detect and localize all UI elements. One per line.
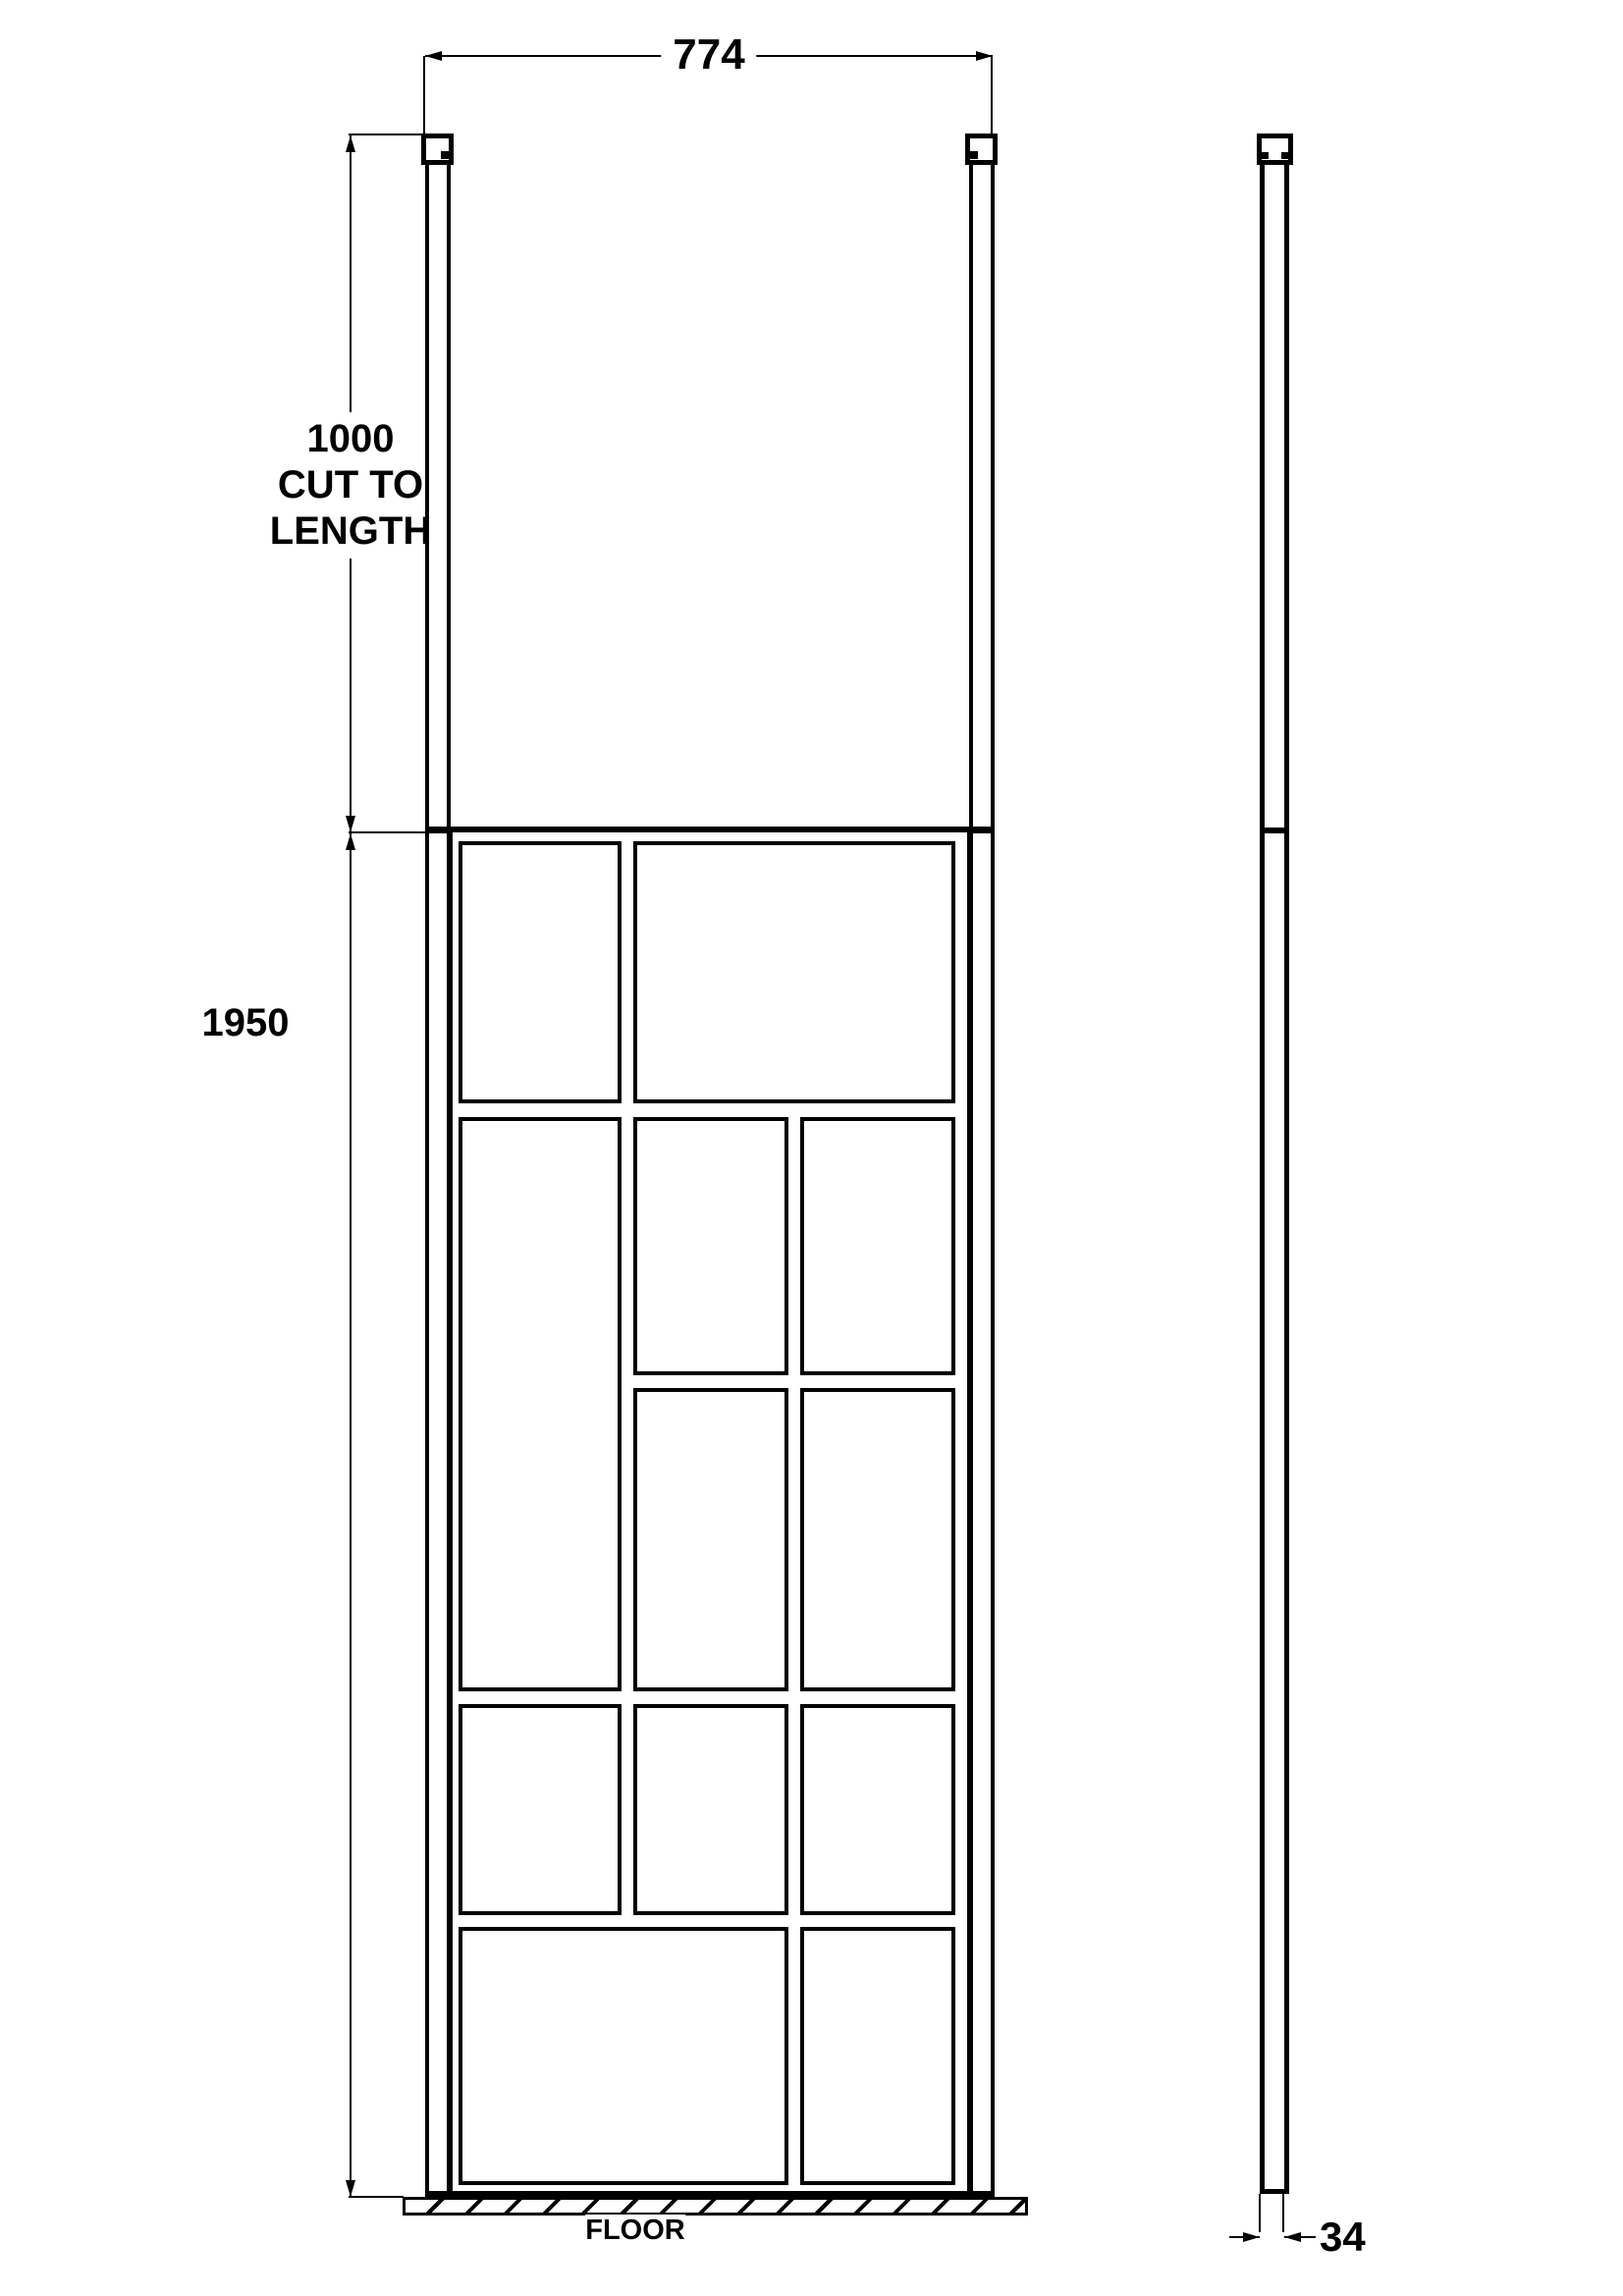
post-dim-arrow-bottom — [346, 816, 355, 832]
side-post-bottom-edge — [1260, 2189, 1289, 2194]
side-post — [1260, 164, 1289, 2194]
left-post-cap — [421, 133, 454, 165]
glass-cell-r3-mid — [633, 1388, 788, 1691]
frame-top-right-junction — [971, 827, 994, 833]
width-dim-arrow-left — [425, 51, 442, 61]
depth-dim-arrow-right — [1284, 2232, 1301, 2242]
post-dim-extension-top — [349, 133, 425, 135]
depth-dim-arrow-left — [1243, 2232, 1260, 2242]
depth-dim-label: 34 — [1320, 2216, 1366, 2259]
width-dim-label: 774 — [661, 32, 756, 78]
frame-top-left-junction — [425, 827, 449, 833]
glass-cell-left-tall — [459, 1117, 622, 1691]
side-post-cap-detail-right — [1281, 152, 1288, 159]
technical-drawing-canvas: 774 1000 CUT TO LENGTH 1950 — [0, 0, 1623, 2296]
glass-cell-r5-right — [800, 1927, 955, 2185]
glass-cell-r1-left — [459, 841, 622, 1103]
side-post-cap-detail-left — [1262, 152, 1269, 159]
glass-cell-r4-left — [459, 1704, 622, 1915]
glass-cell-r4-mid — [633, 1704, 788, 1915]
glass-cell-r1-right-wide — [633, 841, 955, 1103]
floor-extension-line — [349, 2196, 404, 2198]
glass-cell-r3-right — [800, 1388, 955, 1691]
floor-hatch-band — [403, 2197, 1028, 2216]
left-post-cap-detail — [441, 151, 449, 159]
side-glass-top-junction — [1260, 828, 1289, 833]
glass-cell-r4-right — [800, 1704, 955, 1915]
post-dim-extension-bottom — [349, 831, 429, 833]
floor-label: FLOOR — [585, 2215, 685, 2246]
side-post-cap — [1257, 133, 1293, 165]
post-dim-label-line2: CUT TO — [270, 462, 431, 508]
post-dim-label-line1: 1000 — [270, 416, 431, 462]
glass-cell-r2-mid — [633, 1117, 788, 1375]
height-dim-arrow-top — [346, 833, 355, 850]
post-dim-arrow-top — [346, 135, 355, 152]
height-dim-arrow-bottom — [346, 2180, 355, 2197]
depth-dim-extension-left — [1259, 2194, 1261, 2232]
height-dim-label: 1950 — [202, 1001, 290, 1044]
post-dim-label: 1000 CUT TO LENGTH — [264, 412, 437, 559]
glass-cell-r5-left-wide — [459, 1927, 788, 2185]
post-dim-label-line3: LENGTH — [270, 508, 431, 555]
glass-cell-r2-right — [800, 1117, 955, 1375]
right-post-cap — [965, 133, 998, 165]
right-post-cap-detail — [970, 151, 978, 159]
width-dim-extension-left — [423, 56, 425, 134]
width-dim-extension-right — [991, 56, 993, 134]
depth-dim-extension-right — [1282, 2194, 1284, 2232]
height-dim-line — [350, 832, 352, 2197]
